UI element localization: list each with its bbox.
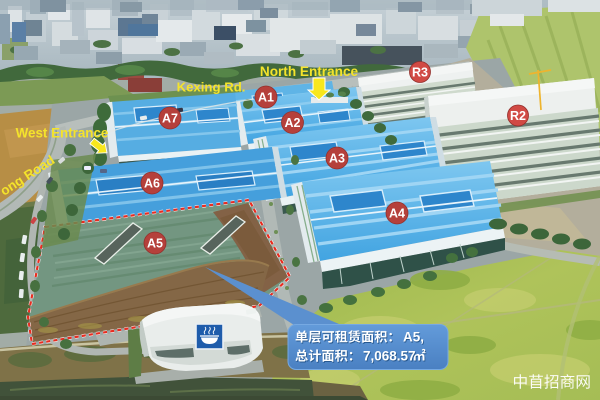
svg-text:R3: R3 [412,66,428,80]
svg-text:A3: A3 [329,152,345,166]
svg-text:A5,: A5, [403,330,424,345]
svg-text:Kexing Rd.: Kexing Rd. [177,80,246,95]
svg-text:7,068.57: 7,068.57 [363,349,416,364]
svg-text:A5: A5 [147,237,163,251]
svg-text:A1: A1 [258,91,274,105]
svg-text:A2: A2 [285,116,301,130]
svg-text:A7: A7 [162,112,178,126]
svg-text:A6: A6 [144,177,160,191]
svg-text:A4: A4 [389,207,405,221]
svg-text:North Entrance: North Entrance [260,64,359,79]
svg-text:R2: R2 [510,109,526,123]
